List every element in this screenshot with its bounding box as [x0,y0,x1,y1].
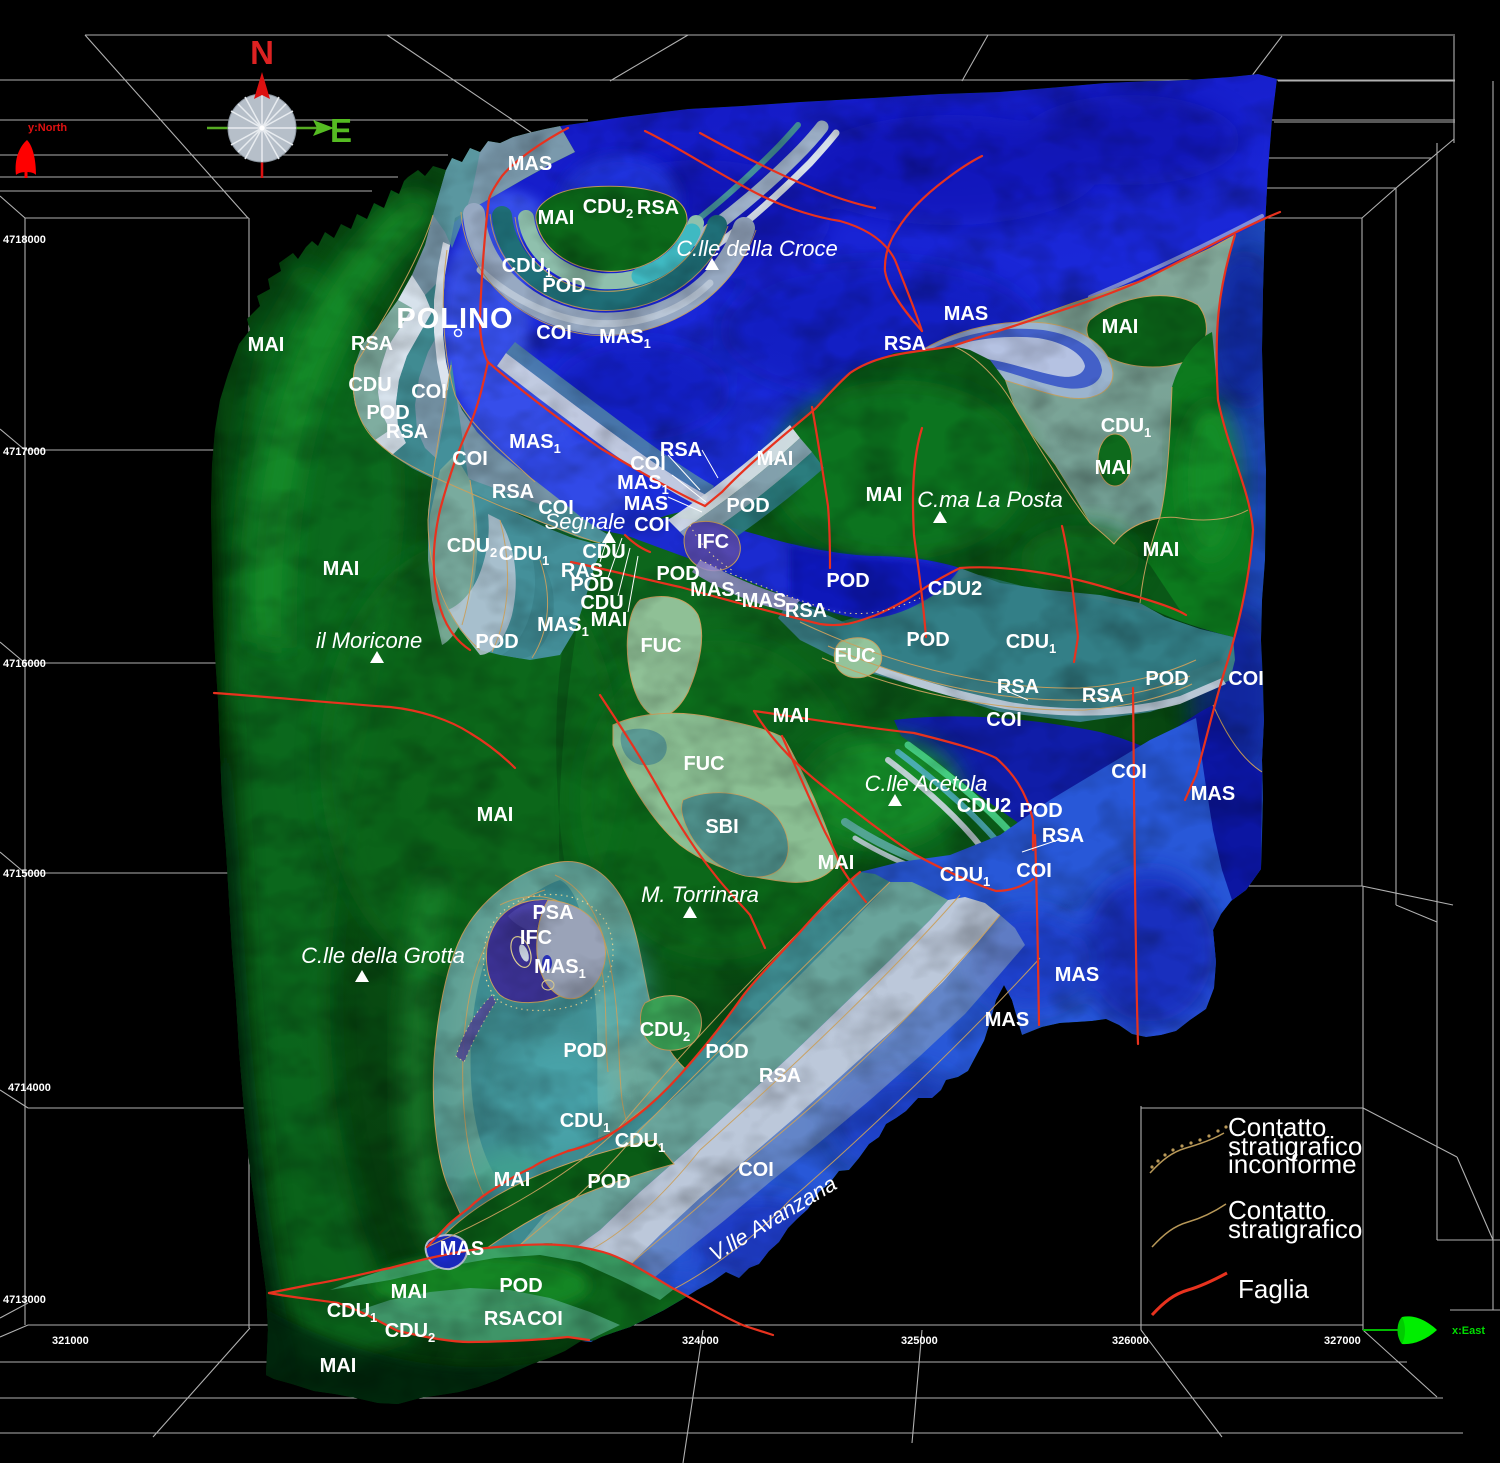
svg-text:4716000: 4716000 [3,658,46,670]
svg-text:CDU2: CDU2 [957,795,1011,817]
svg-text:4718000: 4718000 [3,234,46,246]
svg-text:RSA: RSA [637,197,679,219]
svg-text:C.lle della Croce: C.lle della Croce [676,236,837,261]
svg-text:MAS1: MAS1 [537,614,589,639]
svg-text:POD: POD [826,570,869,592]
svg-text:POD: POD [726,495,769,517]
svg-text:MAI: MAI [494,1169,531,1191]
svg-text:MAI: MAI [1143,539,1180,561]
svg-text:RSA: RSA [884,333,926,355]
svg-text:MAS: MAS [985,1009,1029,1031]
svg-text:inconforme: inconforme [1228,1149,1357,1179]
svg-text:N: N [250,34,274,71]
svg-text:RSA: RSA [484,1308,526,1330]
svg-text:RSA: RSA [492,481,534,503]
svg-text:FUC: FUC [640,635,681,657]
svg-text:COI: COI [411,381,447,403]
svg-text:CDU2: CDU2 [385,1320,436,1345]
svg-text:POD: POD [563,1040,606,1062]
svg-text:SBI: SBI [705,816,738,838]
svg-text:stratigrafico: stratigrafico [1228,1214,1362,1244]
svg-text:RSA: RSA [386,421,428,443]
svg-text:IFC: IFC [697,531,729,553]
svg-text:CDU2: CDU2 [583,196,634,221]
svg-text:POD: POD [1019,800,1062,822]
svg-text:Faglia: Faglia [1238,1274,1309,1304]
svg-text:POD: POD [1145,668,1188,690]
svg-text:COI: COI [527,1308,563,1330]
svg-text:y:North: y:North [28,122,67,134]
svg-text:MAI: MAI [591,609,628,631]
svg-text:MAI: MAI [248,334,285,356]
svg-text:Segnale: Segnale [545,509,626,534]
svg-text:MAI: MAI [323,558,360,580]
svg-text:MAI: MAI [1095,457,1132,479]
svg-text:MAS: MAS [440,1238,484,1260]
svg-text:COI: COI [536,322,572,344]
svg-text:FUC: FUC [834,645,875,667]
svg-text:CDU2: CDU2 [640,1019,691,1044]
svg-text:324000: 324000 [682,1335,719,1347]
svg-text:CDU2: CDU2 [928,578,982,600]
svg-text:MAS: MAS [1055,964,1099,986]
svg-text:COI: COI [738,1159,774,1181]
svg-text:POD: POD [499,1275,542,1297]
svg-text:POD: POD [906,629,949,651]
svg-text:COI: COI [1016,860,1052,882]
svg-text:MAS: MAS [944,303,988,325]
svg-text:CDU1: CDU1 [1101,415,1152,440]
svg-text:C.lle della Grotta: C.lle della Grotta [301,943,465,968]
svg-text:4717000: 4717000 [3,446,46,458]
svg-text:RSA: RSA [785,600,827,622]
svg-text:CDU: CDU [348,374,391,396]
svg-text:POD: POD [475,631,518,653]
svg-text:MAS1: MAS1 [690,579,742,604]
svg-text:MAS: MAS [742,590,786,612]
svg-text:IFC: IFC [520,927,552,949]
svg-text:POD: POD [587,1171,630,1193]
svg-text:325000: 325000 [901,1335,938,1347]
svg-text:327000: 327000 [1324,1335,1361,1347]
svg-text:326000: 326000 [1112,1335,1149,1347]
svg-text:CDU1: CDU1 [560,1110,611,1135]
svg-text:FUC: FUC [683,753,724,775]
svg-text:MAI: MAI [538,207,575,229]
svg-text:M. Torrinara: M. Torrinara [641,882,759,907]
svg-text:CDU1: CDU1 [940,864,991,889]
svg-text:CDU1: CDU1 [1006,631,1057,656]
svg-text:COI: COI [1228,668,1264,690]
svg-text:MAI: MAI [477,804,514,826]
svg-text:4715000: 4715000 [3,868,46,880]
svg-text:RSA: RSA [1042,825,1084,847]
svg-text:MAI: MAI [866,484,903,506]
svg-text:COI: COI [634,514,670,536]
svg-text:x:East: x:East [1452,1325,1485,1337]
svg-text:il Moricone: il Moricone [316,628,422,653]
svg-text:MAS1: MAS1 [509,431,561,456]
svg-text:MAS: MAS [624,493,668,515]
svg-text:COI: COI [1111,761,1147,783]
svg-text:MAS1: MAS1 [599,326,651,351]
svg-text:321000: 321000 [52,1335,89,1347]
svg-text:COI: COI [452,448,488,470]
svg-text:MAI: MAI [818,852,855,874]
svg-text:CDU2: CDU2 [447,535,498,560]
svg-text:MAI: MAI [1102,316,1139,338]
svg-text:MAI: MAI [320,1355,357,1377]
svg-text:PSA: PSA [532,902,573,924]
svg-text:4713000: 4713000 [3,1294,46,1306]
svg-text:RSA: RSA [997,676,1039,698]
svg-text:RSA: RSA [759,1065,801,1087]
svg-text:C.ma La Posta: C.ma La Posta [917,487,1063,512]
svg-text:CDU1: CDU1 [499,543,550,568]
svg-text:MAI: MAI [773,705,810,727]
svg-text:RSA: RSA [660,439,702,461]
svg-text:MAI: MAI [391,1281,428,1303]
svg-text:4714000: 4714000 [8,1082,51,1094]
svg-text:RSA: RSA [351,333,393,355]
svg-text:MAS1: MAS1 [534,956,586,981]
svg-text:POD: POD [705,1041,748,1063]
svg-text:COI: COI [986,709,1022,731]
svg-text:CDU1: CDU1 [615,1130,666,1155]
svg-text:C.lle Acetola: C.lle Acetola [865,771,988,796]
svg-text:MAI: MAI [757,448,794,470]
svg-text:MAS: MAS [1191,783,1235,805]
svg-text:E: E [330,112,352,149]
svg-text:RSA: RSA [1082,685,1124,707]
svg-text:CDU1: CDU1 [327,1300,378,1325]
svg-text:POD: POD [542,275,585,297]
svg-text:MAS: MAS [508,153,552,175]
